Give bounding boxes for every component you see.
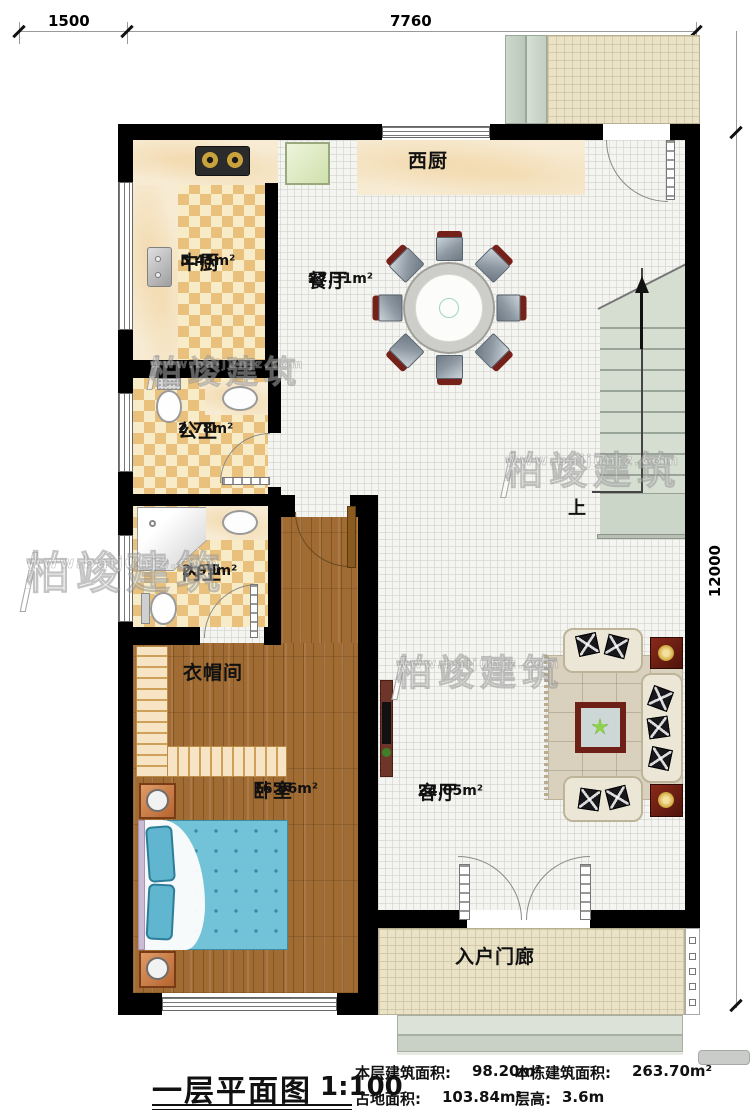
bed-headboard (138, 820, 145, 950)
window (118, 393, 133, 472)
porch-step-edge (397, 1052, 683, 1055)
dining-chair (436, 231, 463, 261)
brand-logo-icon (20, 552, 33, 612)
wall (685, 140, 700, 928)
stat-label: 层高: (515, 1088, 551, 1109)
stair-up-label: 上 (568, 494, 586, 520)
sofa (563, 628, 643, 673)
window (118, 182, 133, 330)
kitchen-sink (147, 247, 172, 287)
door-leaf (459, 864, 470, 920)
title-underline (152, 1109, 352, 1110)
stat-label: 占地面积: (355, 1088, 421, 1109)
wall (118, 627, 200, 645)
rug-fringe (544, 655, 548, 800)
wall (490, 124, 603, 140)
dining-chair (436, 355, 463, 385)
lamp-icon (658, 792, 674, 808)
floor-plan-canvas: 1500 7760 12000 上 (0, 0, 750, 1117)
column-square (689, 983, 696, 990)
toilet-icon (156, 390, 182, 423)
wall (590, 910, 685, 928)
dimension-label-7760: 7760 (390, 12, 432, 30)
kitchen-sink-drain (155, 256, 161, 262)
wall (118, 360, 278, 378)
stair-landing (600, 493, 685, 535)
window (118, 535, 133, 622)
porch-step (397, 1015, 683, 1035)
wall (358, 495, 378, 1015)
stove-burner (202, 152, 218, 168)
wall (264, 627, 281, 645)
wall (268, 487, 281, 494)
dining-chair (373, 295, 403, 322)
sofa-pillow (648, 746, 673, 771)
tv-icon (382, 702, 391, 744)
entry-porch-paving (378, 928, 685, 1015)
column-square (689, 937, 696, 944)
wall (118, 622, 133, 1015)
toilet-tank (141, 593, 150, 624)
column-square (689, 968, 696, 975)
terrace-step (505, 35, 526, 124)
fridge (285, 142, 330, 185)
dining-table-center (439, 298, 459, 318)
stair-base-plate (597, 534, 688, 539)
wall (670, 124, 700, 140)
bed-pillow (145, 825, 176, 883)
porch-column-strip (685, 928, 700, 1015)
wall (118, 124, 382, 140)
west-kitchen-counter (357, 140, 585, 195)
wall (265, 183, 278, 360)
terrace-step (526, 35, 547, 124)
wall (118, 124, 133, 182)
door-leaf (222, 477, 270, 485)
column-square (689, 999, 696, 1006)
bed-pillow (146, 883, 176, 940)
sofa-pillow (575, 632, 600, 657)
stat-label: 本层建筑面积: (355, 1062, 451, 1083)
terrace-paving (547, 35, 700, 124)
sink-icon (222, 510, 258, 535)
title-underline (152, 1104, 352, 1106)
wall (118, 494, 281, 506)
stove-burner (227, 152, 243, 168)
lamp-icon (146, 957, 169, 980)
sink-icon (222, 386, 258, 411)
plant-icon (382, 748, 391, 757)
stat-value: 3.6m (562, 1088, 604, 1106)
stat-label: 本栋建筑面积: (515, 1062, 611, 1083)
dimension-label-1500: 1500 (48, 12, 90, 30)
lamp-icon (658, 645, 674, 661)
wall (268, 378, 281, 433)
wall (268, 506, 281, 645)
door-leaf (580, 864, 591, 920)
sofa (563, 776, 643, 822)
toilet-icon (150, 592, 177, 625)
door-leaf (250, 584, 258, 638)
shower-drain (149, 520, 156, 527)
column-square (689, 953, 696, 960)
stair-up-arrow-shaft (640, 291, 643, 349)
lamp-icon (146, 789, 169, 812)
sofa-pillow (647, 716, 671, 740)
kitchen-sink-drain (155, 272, 161, 278)
dimension-label-12000: 12000 (706, 545, 724, 597)
stat-value: 263.70m² (632, 1062, 712, 1080)
door-leaf (666, 140, 675, 200)
dimension-line-top (19, 31, 697, 32)
wardrobe (167, 746, 287, 777)
porch-step (397, 1035, 683, 1052)
window (382, 126, 490, 138)
window (162, 997, 337, 1011)
sofa-pillow (578, 788, 602, 812)
stat-value: 103.84m² (442, 1088, 522, 1106)
door-leaf (347, 506, 356, 568)
wall (281, 495, 295, 517)
toilet-tank (157, 378, 181, 390)
dining-chair (497, 295, 527, 322)
wardrobe (136, 646, 168, 777)
dimension-line-right (736, 31, 737, 1008)
wall (133, 993, 162, 1015)
